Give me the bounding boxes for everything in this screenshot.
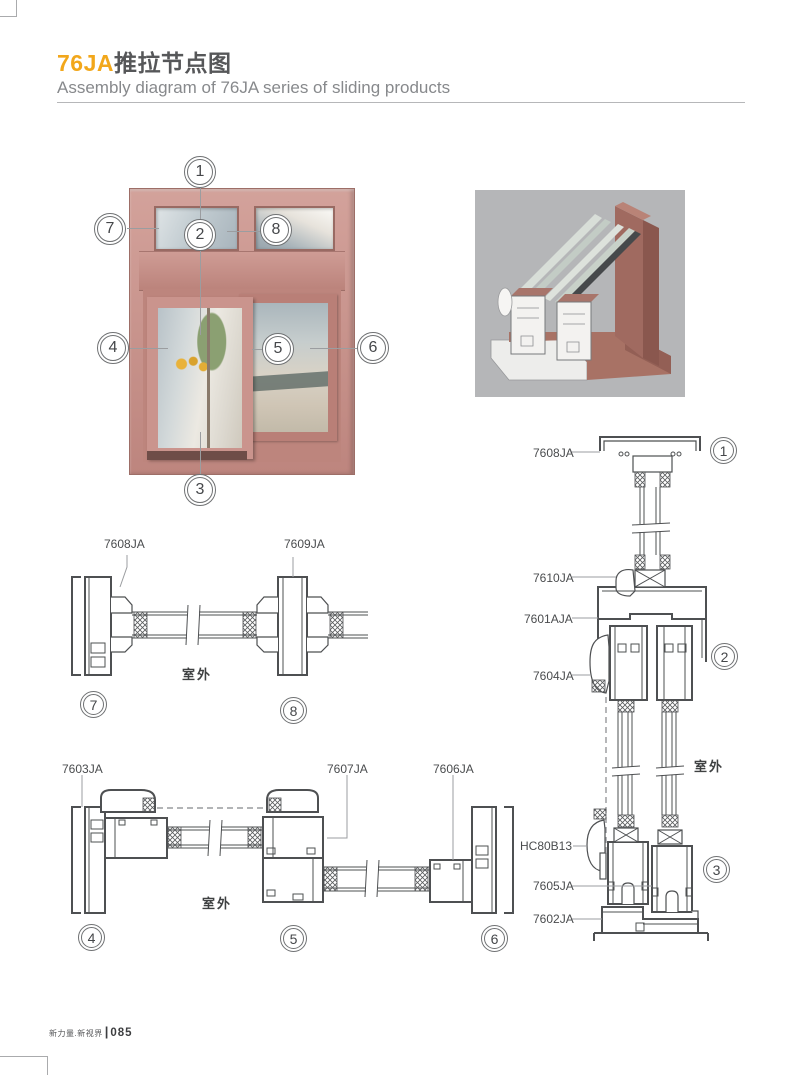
leader-line — [252, 349, 262, 350]
callout-2: 2 — [184, 219, 216, 251]
profile-label-7608JA: 7608JA — [104, 537, 145, 551]
page-title: 76JA推拉节点图 — [57, 44, 231, 78]
window-sash-right — [239, 294, 337, 441]
catalog-page: 76JA推拉节点图 Assembly diagram of 76JA serie… — [0, 0, 800, 1075]
glass-reflection-detail — [248, 371, 328, 392]
profile-label-7601AJA: 7601AJA — [524, 612, 573, 626]
outdoor-label-bottom: 室外 — [202, 893, 232, 912]
window-sliding-section — [143, 289, 341, 462]
window-sash-right-glass — [248, 303, 328, 432]
section-drawing-7-8 — [35, 555, 390, 695]
callout-8: 8 — [260, 214, 292, 246]
callout-5: 5 — [262, 333, 294, 365]
detail-callout-5: 5 — [280, 925, 307, 952]
callout-4: 4 — [97, 332, 129, 364]
callout-3: 3 — [184, 474, 216, 506]
footer-divider: | — [105, 1024, 109, 1039]
page-title-cn: 推拉节点图 — [114, 50, 232, 76]
outdoor-label-mid: 室外 — [182, 664, 212, 683]
profile-label-7610JA: 7610JA — [533, 571, 574, 585]
profile-label-7609JA: 7609JA — [284, 537, 325, 551]
corner-mark-top-left — [0, 0, 17, 17]
profile-label-7605JA: 7605JA — [533, 879, 574, 893]
callout-6: 6 — [357, 332, 389, 364]
leader-line — [200, 187, 201, 220]
outdoor-label-right: 室外 — [694, 756, 724, 775]
profile-label-HC80B13: HC80B13 — [520, 839, 572, 853]
leader-line — [130, 348, 168, 349]
leader-line — [200, 432, 201, 474]
callout-1: 1 — [184, 156, 216, 188]
detail-callout-2: 2 — [711, 643, 738, 670]
detail-callout-1: 1 — [710, 437, 737, 464]
page-title-code: 76JA — [57, 50, 114, 76]
detail-callout-8: 8 — [280, 697, 307, 724]
profile-label-7604JA: 7604JA — [533, 669, 574, 683]
detail-callout-4: 4 — [78, 924, 105, 951]
page-subtitle: Assembly diagram of 76JA series of slidi… — [57, 78, 450, 98]
section-drawing-1-2-3 — [520, 430, 780, 945]
profile-3d-render — [475, 190, 685, 397]
detail-callout-3: 3 — [703, 856, 730, 883]
section-drawing-4-5-6 — [35, 770, 525, 925]
leader-line — [200, 251, 201, 335]
leader-line — [227, 231, 260, 232]
leader-line — [310, 348, 357, 349]
callout-7: 7 — [94, 213, 126, 245]
window-bottom-track — [147, 451, 247, 460]
leader-line — [127, 228, 159, 229]
profile-label-7602JA: 7602JA — [533, 912, 574, 926]
corner-mark-bottom-left — [0, 1056, 48, 1075]
profile-label-7603JA: 7603JA — [62, 762, 103, 776]
footer-brand: 新力量.新视界 — [49, 1028, 103, 1039]
page-footer: 新力量.新视界 | 085 — [49, 1024, 133, 1039]
detail-callout-6: 6 — [481, 925, 508, 952]
profile-label-7608JA-right: 7608JA — [533, 446, 574, 460]
window-transom — [139, 251, 345, 291]
header-divider — [57, 102, 745, 103]
profile-label-7606JA: 7606JA — [433, 762, 474, 776]
detail-callout-7: 7 — [80, 691, 107, 718]
footer-page-number: 085 — [110, 1027, 132, 1039]
glass-reflection-mullion — [207, 308, 210, 448]
profile-label-7607JA: 7607JA — [327, 762, 368, 776]
